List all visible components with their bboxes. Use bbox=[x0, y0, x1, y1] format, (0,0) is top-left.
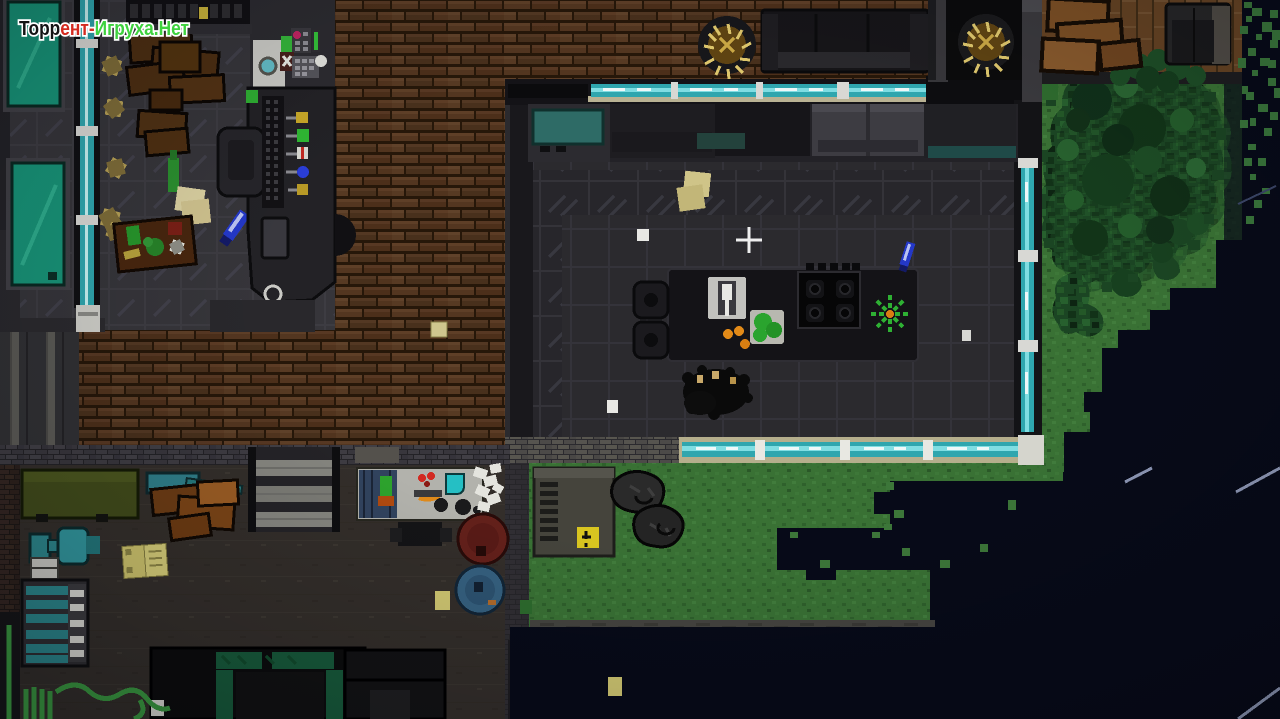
svg-text:Торрент-Игруха.Нет: Торрент-Игруха.Нет bbox=[19, 18, 189, 40]
